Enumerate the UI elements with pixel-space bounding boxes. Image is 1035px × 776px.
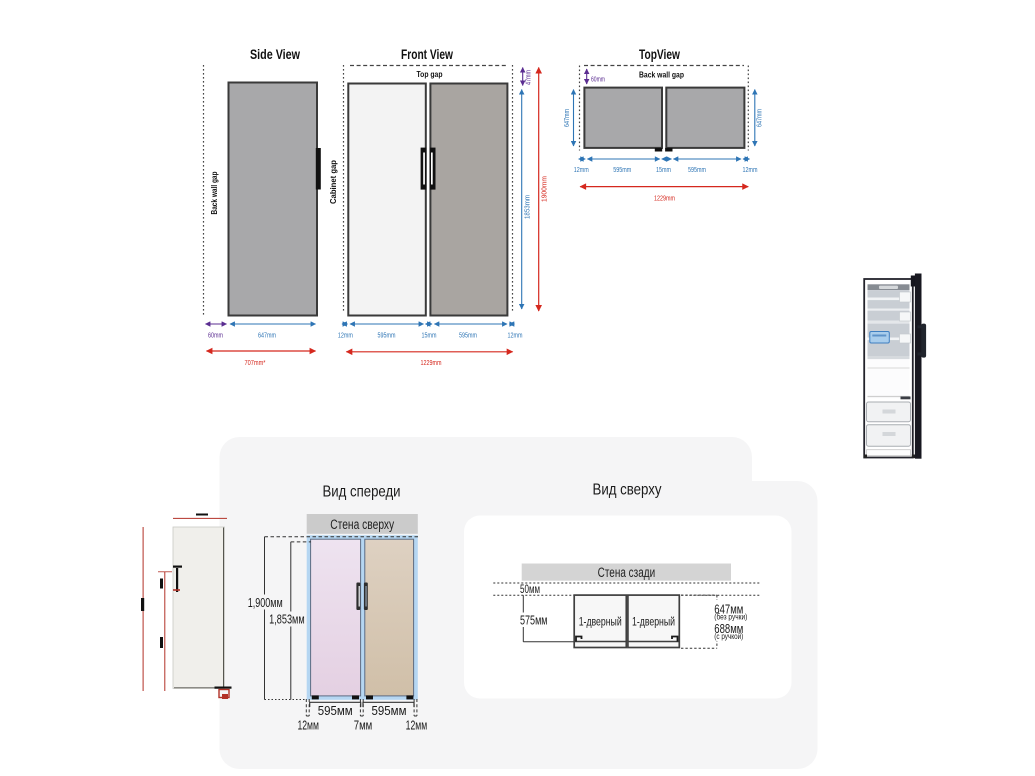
svg-text:(без ручки): (без ручки) bbox=[714, 611, 747, 621]
svg-text:595mm: 595mm bbox=[613, 165, 631, 174]
svg-text:Вид спереди: Вид спереди bbox=[323, 484, 401, 501]
svg-text:595мм: 595мм bbox=[372, 704, 407, 718]
svg-text:TopView: TopView bbox=[639, 47, 680, 62]
svg-text:7мм: 7мм bbox=[354, 719, 373, 733]
svg-text:Side View: Side View bbox=[250, 47, 300, 62]
svg-text:1,853мм: 1,853мм bbox=[269, 613, 305, 627]
svg-text:595mm: 595mm bbox=[688, 165, 706, 174]
svg-text:707mm*: 707mm* bbox=[245, 358, 266, 367]
svg-text:595мм: 595мм bbox=[318, 704, 353, 718]
svg-text:1-дверный: 1-дверный bbox=[632, 616, 675, 628]
svg-text:15mm: 15mm bbox=[422, 331, 437, 340]
svg-text:647mm: 647mm bbox=[755, 109, 764, 127]
svg-text:575мм: 575мм bbox=[520, 613, 548, 627]
svg-text:595mm: 595mm bbox=[378, 331, 396, 340]
svg-text:Cabinet gap: Cabinet gap bbox=[328, 160, 338, 204]
svg-text:1853mm: 1853mm bbox=[523, 195, 532, 219]
svg-text:Вид сверху: Вид сверху bbox=[593, 482, 662, 499]
svg-text:12mm: 12mm bbox=[508, 331, 523, 340]
svg-text:60mm: 60mm bbox=[208, 331, 223, 340]
svg-text:12мм: 12мм bbox=[297, 719, 319, 733]
svg-text:47mm: 47mm bbox=[524, 70, 533, 85]
svg-text:647mm: 647mm bbox=[258, 331, 276, 340]
svg-text:Top gap: Top gap bbox=[417, 69, 443, 79]
svg-text:12mm: 12mm bbox=[743, 165, 758, 174]
svg-text:1229mm: 1229mm bbox=[421, 358, 442, 367]
svg-text:647mm: 647mm bbox=[562, 109, 571, 127]
svg-text:Стена сзади: Стена сзади bbox=[598, 565, 656, 580]
svg-text:1,900мм: 1,900мм bbox=[248, 596, 283, 610]
svg-text:Front View: Front View bbox=[401, 47, 453, 62]
svg-text:12mm: 12mm bbox=[338, 331, 353, 340]
svg-text:12мм: 12мм bbox=[406, 719, 428, 733]
svg-text:1900mm: 1900mm bbox=[540, 176, 549, 202]
svg-text:(с ручкой): (с ручкой) bbox=[714, 631, 743, 641]
svg-text:Back wall gap: Back wall gap bbox=[639, 70, 684, 80]
svg-text:595mm: 595mm bbox=[459, 331, 477, 340]
svg-text:50мм: 50мм bbox=[520, 582, 540, 596]
svg-text:60mm: 60mm bbox=[591, 75, 605, 84]
svg-text:1-дверный: 1-дверный bbox=[579, 616, 622, 628]
svg-text:12mm: 12mm bbox=[574, 165, 589, 174]
svg-text:Back wall gap: Back wall gap bbox=[209, 172, 219, 215]
svg-text:1229mm: 1229mm bbox=[654, 194, 675, 203]
svg-text:15mm: 15mm bbox=[656, 165, 671, 174]
svg-text:Стена сверху: Стена сверху bbox=[330, 517, 394, 532]
